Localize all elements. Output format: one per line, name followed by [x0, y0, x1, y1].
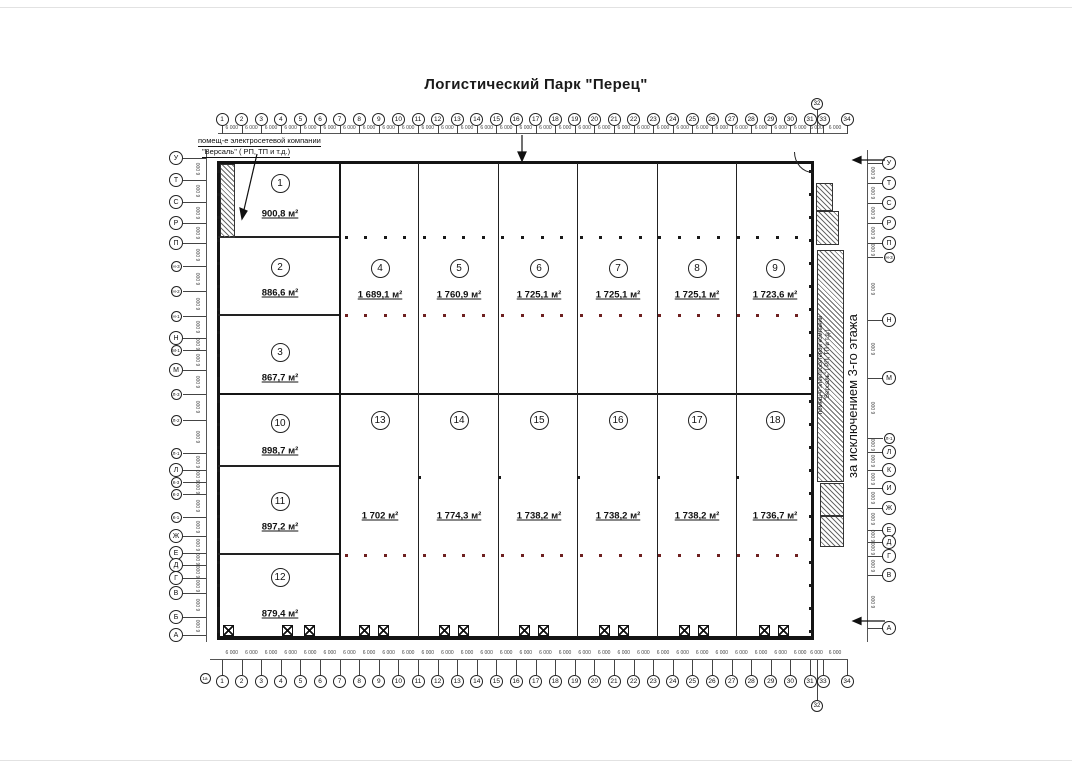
floor-plan: помещ-е электросетевой компании "Версаль…: [0, 0, 1072, 768]
arrow-left-bottom-icon: [853, 618, 861, 625]
leader-arrow-icon: [240, 208, 247, 219]
arrow-down-icon: [518, 152, 526, 161]
leader-line: [243, 154, 257, 214]
drawing-page: { "title": "Логистический Парк \"Перец\"…: [0, 0, 1072, 768]
arrow-left-top-icon: [853, 157, 861, 164]
annotation-arrows: [0, 0, 1072, 768]
